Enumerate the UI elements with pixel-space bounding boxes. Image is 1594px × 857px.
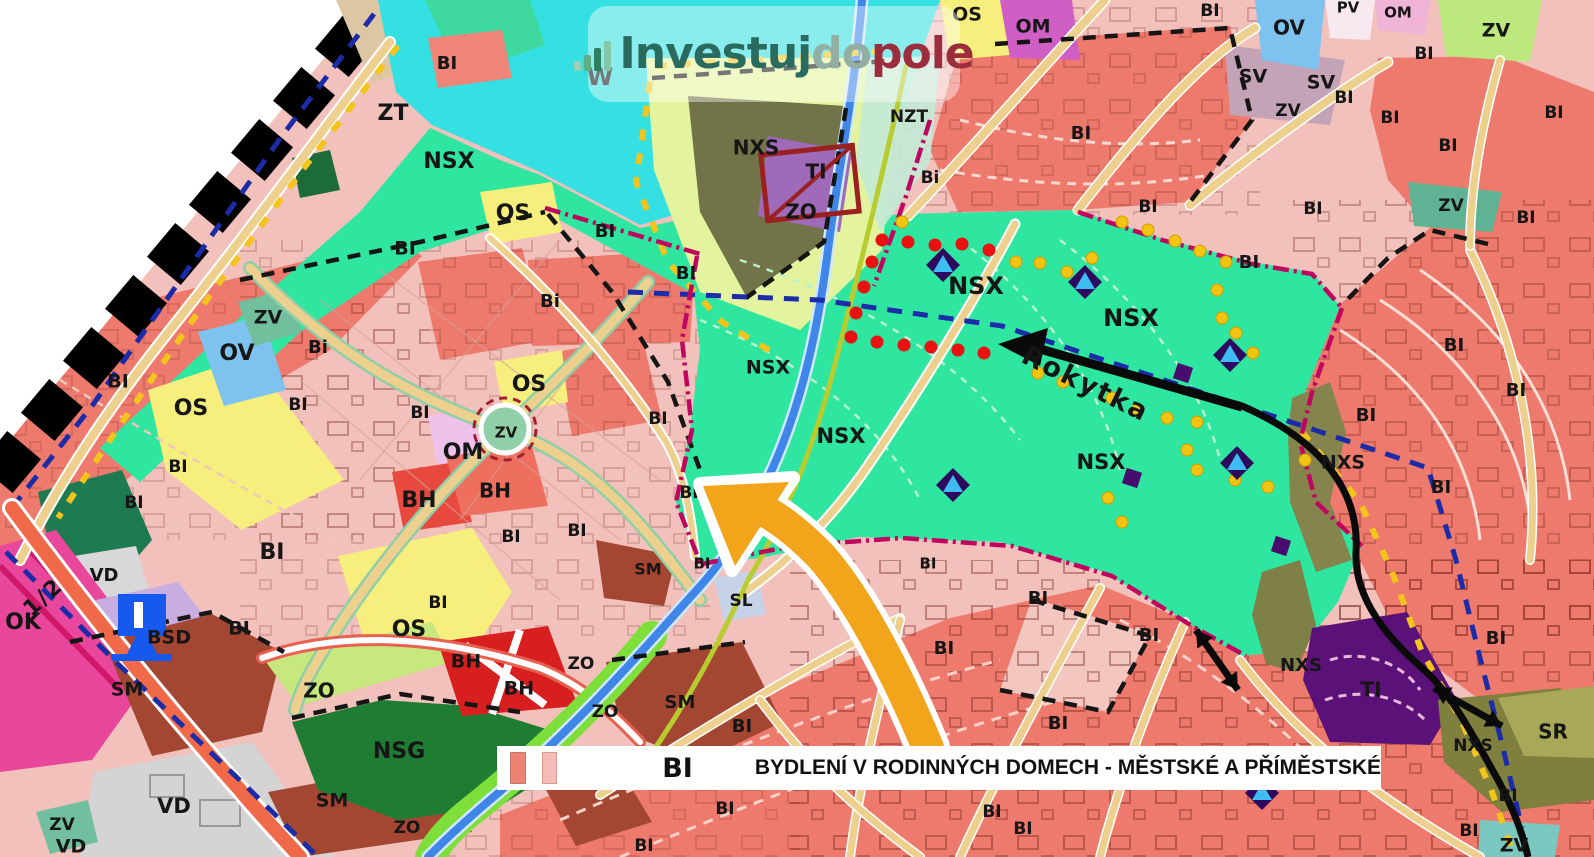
yellow-dot-marker [1034,257,1046,269]
red-dot-marker [952,344,965,357]
zone-label: BH [479,479,511,503]
zone-label: BI [1048,713,1068,734]
zone-label: BI [1139,625,1159,646]
zone-label: Bi [921,168,940,188]
zone-label: BI [437,53,457,74]
zone-label: NXS [733,136,780,160]
zone-label: SM [316,790,349,812]
zone-label: BI [919,555,936,573]
zone-label: BI [676,263,696,284]
zone-label: BI [501,527,520,547]
zone-label: BI [228,618,250,640]
zone-label: SM [111,679,144,701]
zone-label: SM [665,692,696,713]
zone-label: NXS [1453,736,1493,756]
yellow-dot-marker [1061,266,1073,278]
zone-label: BI [634,836,653,856]
yellow-dot-marker [1102,492,1114,504]
zone-label: NSX [1077,450,1126,474]
zone-label: BI [1544,103,1563,123]
zone-label: ZV [1500,835,1529,857]
zone-label: BI [1444,335,1464,356]
zone-label: NSX [746,357,791,379]
zone-label: SL [729,591,752,611]
zone-label: BI [1138,197,1157,217]
zone-label: BI [1380,108,1399,128]
zone-label: BH [451,651,481,673]
zone-label: ZO [303,679,335,703]
yellow-dot-marker [1086,252,1098,264]
zone-label: ZT [378,101,409,126]
red-dot-marker [845,331,858,344]
zone-label: NSG [373,739,425,764]
zone-label: BI [1414,44,1433,64]
zone-label: OV [219,341,254,366]
yellow-dot-marker [1116,516,1128,528]
red-dot-marker [871,336,884,349]
yellow-dot-marker [1262,481,1274,493]
zone-label: ZV [1438,196,1464,216]
zone-label: OS [392,617,427,642]
red-dot-marker [978,347,991,360]
yellow-dot-marker [1299,454,1311,466]
logo-part-pole: pole [871,28,974,79]
yellow-dot-marker [1211,284,1223,296]
zone-label: BI [1516,208,1535,228]
zone-label: BI [715,799,734,819]
zone-label: BI [107,371,129,393]
legend-description: BYDLENÍ V RODINNÝCH DOMECH - MĚSTSKÉ A P… [755,756,1381,780]
zone-label: BI [1459,821,1478,841]
zone-label: BI [288,395,307,415]
zone-label: BI [1431,477,1451,498]
zone-label: ZO [394,818,421,838]
zone-label: ZV [49,815,75,835]
bar-chart-icon [574,37,611,71]
zone-label: BI [394,238,416,260]
legend-swatch-light [542,752,557,784]
red-dot-marker [902,236,915,249]
zone-label: VD [56,836,86,857]
zone-label: NZT [890,107,929,127]
logo-part-investuj: Investuj [619,28,811,79]
zone-label: BI [1506,380,1526,401]
yellow-dot-marker [1247,347,1259,359]
yellow-dot-marker [1161,412,1173,424]
yellow-dot-marker [1191,416,1203,428]
zone-label: ZV [1275,101,1301,121]
zone-label: NSX [948,272,1004,300]
zone-label: ZV [1482,20,1511,42]
zone-label: TI [1360,678,1381,702]
zone-label: BI [1498,786,1517,806]
zone-label: OV [1273,16,1305,40]
zone-label: OS [512,372,547,397]
zone-label: SR [1538,720,1568,744]
zone-label: OS [496,201,531,226]
zone-label: ZV [254,307,283,329]
zone-label: BI [1303,199,1322,219]
zone-label: BH [504,678,534,700]
red-dot-marker [898,339,911,352]
zone-label: BI [982,802,1001,822]
zone-label: Bi [540,291,560,312]
yellow-dot-marker [1191,464,1203,476]
yellow-dot-marker [1216,312,1228,324]
zone-label: VD [90,565,119,586]
zone-label: BH [401,488,436,513]
red-dot-marker [925,341,938,354]
yellow-dot-marker [1142,224,1154,236]
zone-label: Bi [308,337,328,358]
yellow-dot-marker [896,216,908,228]
zone-label: VD [157,794,191,818]
yellow-dot-marker [1230,327,1242,339]
legend-swatch-dark [510,752,526,784]
zone-label: ZV [495,424,518,442]
red-dot-marker [983,244,996,257]
zone-label: SV [1307,72,1336,94]
zone-label: ZO [785,200,817,224]
zoning-map: WBIZTNSXOSBIBIBiBIBiZVOVBIOSBIBIBIOSZVOM… [0,0,1594,857]
zone-label: OM [1384,4,1412,22]
zone-label: OM [443,440,484,465]
zone-label: BI [410,403,429,423]
red-dot-marker [858,281,871,294]
zone-label: ZO [568,654,595,674]
zone-label: NSX [1103,304,1159,332]
yellow-dot-marker [1220,256,1232,268]
zone-label: BI [1486,628,1506,649]
red-dot-marker [929,239,942,252]
zone-label: BI [1071,123,1091,144]
zone-label: SV [1239,66,1268,88]
red-dot-marker [876,234,889,247]
zone-label: BI [693,555,710,573]
watermark-logo: Investujdopole [588,6,960,102]
legend-bar: BI BYDLENÍ V RODINNÝCH DOMECH - MĚSTSKÉ … [497,746,1381,790]
zone-label: BI [934,638,954,659]
yellow-dot-marker [1010,256,1022,268]
zone-label: BI [648,409,667,429]
red-dot-marker [850,307,863,320]
zone-label: SM [634,560,661,579]
zone-label: BI [1028,588,1048,609]
logo-part-do: do [811,28,871,79]
zone-label: TI [805,160,826,184]
yellow-dot-marker [1181,444,1193,456]
red-dot-marker [866,256,879,269]
zone-label: BI [1438,136,1457,156]
zone-label: PV [1337,0,1360,17]
yellow-dot-marker [1194,245,1206,257]
zone-label: BI [732,716,752,737]
zone-label: BI [1200,1,1219,21]
zone-label: BI [1356,405,1376,426]
zone-label: BI [595,221,615,242]
yellow-dot-marker [1169,235,1181,247]
zone-label: NXS [1321,452,1365,474]
zone-label: BI [1013,819,1032,839]
zone-label: BI [428,593,447,613]
legend-zone-code: BI [662,753,693,784]
zone-label: BI [1239,252,1259,273]
zone-label: BI [124,493,143,513]
zone-label: BI [1334,88,1353,108]
zone-label: NSX [817,424,866,448]
zoning-map-screenshot: WBIZTNSXOSBIBIBiBIBiZVOVBIOSBIBIBIOSZVOM… [0,0,1594,857]
zone-label: NSX [423,149,474,174]
yellow-dot-marker [1116,216,1128,228]
red-dot-marker [956,238,969,251]
zone-label: BI [168,457,187,477]
zone-label: OM [1015,16,1050,38]
zone-label: BSD [147,627,191,649]
zone-label: ZO [592,702,619,722]
zone-label: BI [567,521,586,541]
zone-label: BI [260,540,285,565]
zone-label: OS [174,396,209,421]
zone-label: NXS [1280,655,1322,676]
